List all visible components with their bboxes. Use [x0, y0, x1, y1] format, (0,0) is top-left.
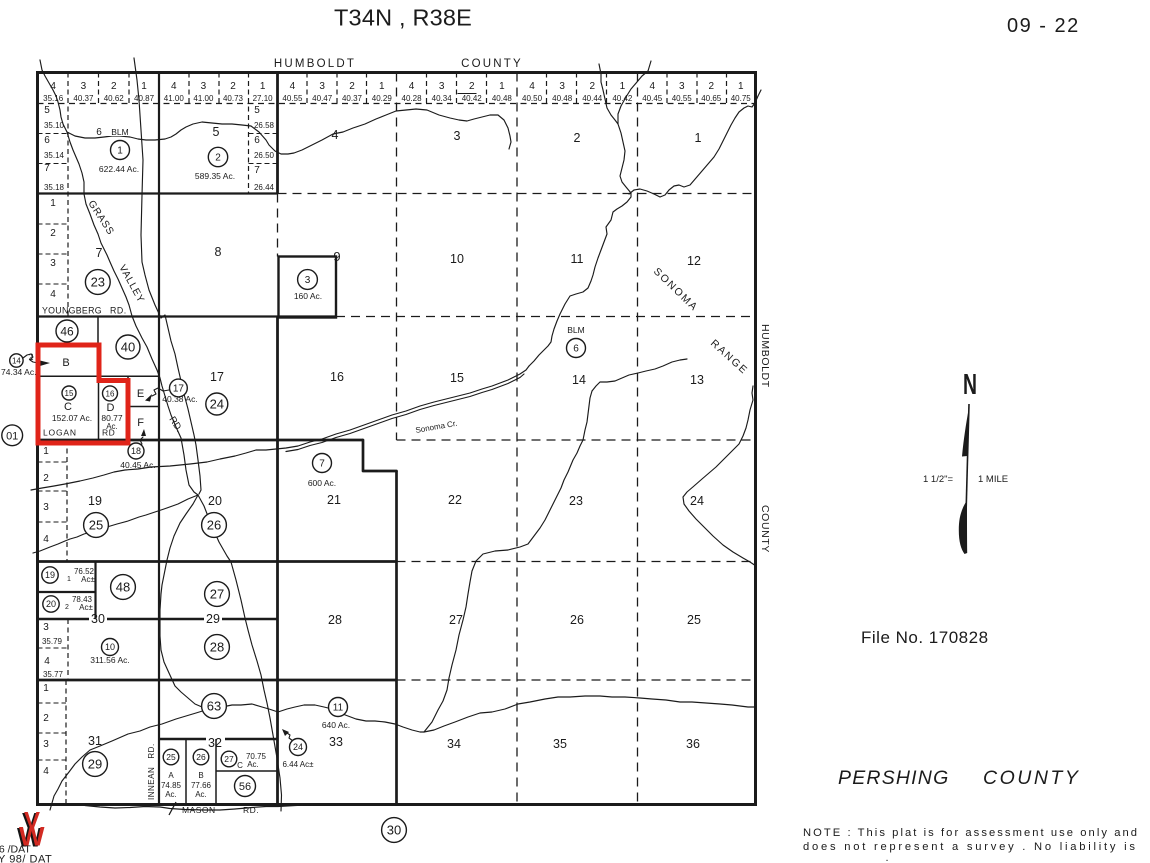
svg-text:311.56 Ac.: 311.56 Ac. [90, 655, 130, 665]
svg-text:T34N , R38E: T34N , R38E [334, 5, 472, 31]
svg-text:6: 6 [254, 135, 260, 146]
svg-text:35.10: 35.10 [44, 121, 65, 130]
svg-text:RD: RD [102, 428, 115, 438]
svg-text:SONOMA: SONOMA [651, 266, 701, 315]
svg-text:3: 3 [559, 81, 565, 92]
svg-text:1: 1 [260, 81, 266, 92]
svg-text:35.18: 35.18 [44, 183, 65, 192]
svg-text:1: 1 [43, 683, 49, 694]
svg-text:40.48: 40.48 [492, 94, 513, 103]
svg-text:does not represent a survey .: does not represent a survey . No liabili… [803, 841, 1135, 853]
svg-text:160 Ac.: 160 Ac. [294, 291, 322, 301]
svg-text:40.45 Ac.: 40.45 Ac. [120, 460, 155, 470]
svg-text:2: 2 [111, 81, 117, 92]
svg-text:16: 16 [330, 370, 344, 384]
svg-text:40.47: 40.47 [312, 94, 333, 103]
svg-text:15: 15 [450, 371, 464, 385]
svg-text:RANGE: RANGE [708, 337, 750, 377]
svg-text:1: 1 [695, 131, 702, 145]
svg-text:Ac±: Ac± [81, 575, 95, 584]
svg-text:74.34 Ac.: 74.34 Ac. [1, 367, 36, 377]
svg-text:9: 9 [333, 249, 340, 264]
svg-text:2: 2 [589, 81, 595, 92]
svg-text:40.45: 40.45 [642, 94, 663, 103]
svg-text:2: 2 [469, 81, 475, 92]
svg-text:40.37: 40.37 [342, 94, 363, 103]
svg-text:11: 11 [333, 703, 344, 714]
svg-text:24: 24 [210, 397, 224, 412]
svg-text:3: 3 [305, 275, 311, 286]
svg-text:25: 25 [166, 752, 176, 762]
svg-text:RD.: RD. [166, 415, 184, 435]
svg-text:D: D [107, 402, 115, 414]
svg-text:17: 17 [210, 370, 224, 384]
svg-text:63: 63 [207, 699, 221, 714]
svg-text:19: 19 [88, 494, 102, 508]
svg-text:7: 7 [254, 165, 260, 176]
svg-text:4: 4 [290, 81, 296, 92]
svg-text:4: 4 [529, 81, 535, 92]
svg-text:29: 29 [88, 757, 102, 772]
svg-text:LOGAN: LOGAN [43, 428, 77, 438]
svg-text:10: 10 [105, 642, 115, 652]
svg-text:5: 5 [213, 125, 220, 139]
svg-text:24: 24 [293, 742, 303, 752]
svg-text:2: 2 [230, 81, 236, 92]
svg-text:14: 14 [12, 356, 21, 365]
svg-text:N: N [963, 369, 977, 401]
svg-text:26: 26 [570, 613, 584, 627]
svg-text:15: 15 [65, 389, 74, 398]
svg-text:35.79: 35.79 [42, 637, 63, 646]
svg-text:33: 33 [329, 735, 343, 749]
svg-text:48: 48 [116, 580, 130, 595]
svg-text:3: 3 [454, 129, 461, 143]
svg-text:27: 27 [210, 587, 224, 602]
svg-text:C: C [237, 761, 243, 770]
svg-text:6: 6 [573, 344, 579, 355]
svg-text:Y 98/ DAT: Y 98/ DAT [0, 854, 52, 863]
svg-text:23: 23 [91, 275, 105, 290]
svg-text:600 Ac.: 600 Ac. [308, 478, 336, 488]
svg-text:40.34: 40.34 [432, 94, 453, 103]
svg-text:40.44: 40.44 [582, 94, 603, 103]
svg-text:26.44: 26.44 [254, 183, 275, 192]
svg-text:4: 4 [171, 81, 177, 92]
svg-text:09 - 22: 09 - 22 [1007, 15, 1080, 37]
svg-text:40.62: 40.62 [104, 94, 125, 103]
svg-text:25: 25 [89, 518, 103, 533]
svg-text:40.28: 40.28 [402, 94, 423, 103]
svg-text:21: 21 [327, 493, 341, 507]
svg-text:3: 3 [81, 81, 87, 92]
svg-text:26: 26 [207, 518, 221, 533]
svg-text:36: 36 [686, 737, 700, 751]
svg-text:22: 22 [448, 493, 462, 507]
svg-text:19: 19 [45, 570, 55, 580]
svg-text:A: A [168, 771, 174, 780]
svg-text:40.87: 40.87 [134, 94, 155, 103]
svg-text:GRASS: GRASS [85, 199, 115, 238]
svg-text:6.44 Ac±: 6.44 Ac± [282, 760, 314, 769]
svg-text:.: . [885, 852, 888, 863]
svg-text:2: 2 [28, 352, 33, 362]
svg-text:F: F [137, 417, 144, 429]
svg-text:4: 4 [50, 289, 56, 300]
svg-text:23: 23 [569, 494, 583, 508]
svg-text:40.29: 40.29 [372, 94, 393, 103]
svg-text:7: 7 [44, 163, 50, 174]
svg-text:B: B [198, 771, 203, 780]
svg-text:6: 6 [44, 135, 50, 146]
svg-text:40.65: 40.65 [701, 94, 722, 103]
svg-text:27.10: 27.10 [253, 94, 274, 103]
svg-text:2: 2 [708, 81, 714, 92]
svg-text:589.35 Ac.: 589.35 Ac. [195, 171, 235, 181]
svg-text:YOUNGBERG: YOUNGBERG [42, 306, 102, 316]
svg-text:5: 5 [44, 105, 50, 116]
svg-text:13: 13 [690, 373, 704, 387]
svg-text:622.44 Ac.: 622.44 Ac. [99, 164, 139, 174]
svg-text:3: 3 [43, 739, 49, 750]
svg-text:40.48: 40.48 [552, 94, 573, 103]
svg-text:56: 56 [239, 781, 251, 793]
svg-text:34: 34 [447, 737, 461, 751]
svg-text:Ac.: Ac. [165, 790, 177, 799]
svg-text:RD.: RD. [243, 805, 259, 815]
svg-text:2: 2 [65, 604, 69, 611]
svg-text:PERSHING: PERSHING [838, 767, 949, 789]
svg-text:27: 27 [224, 754, 234, 764]
svg-text:40.42: 40.42 [462, 94, 483, 103]
svg-text:2: 2 [349, 81, 355, 92]
svg-text:35.16: 35.16 [43, 94, 64, 103]
svg-text:BLM: BLM [567, 325, 584, 335]
svg-text:24: 24 [690, 494, 704, 508]
svg-text:4: 4 [43, 766, 49, 777]
svg-text:2: 2 [50, 228, 56, 239]
svg-text:41.00: 41.00 [193, 94, 214, 103]
svg-text:26.50: 26.50 [254, 151, 275, 160]
svg-text:40.73: 40.73 [223, 94, 244, 103]
svg-text:1: 1 [50, 198, 56, 209]
svg-text:HUMBOLDT: HUMBOLDT [759, 324, 771, 388]
svg-text:3: 3 [43, 502, 49, 513]
svg-text:4: 4 [649, 81, 655, 92]
svg-text:COUNTY: COUNTY [759, 505, 771, 553]
svg-text:40.37: 40.37 [73, 94, 94, 103]
svg-text:40: 40 [121, 340, 135, 355]
svg-text:40.55: 40.55 [282, 94, 303, 103]
svg-text:28: 28 [328, 613, 342, 627]
svg-text:29: 29 [206, 612, 220, 626]
svg-text:File No. 170828: File No. 170828 [861, 628, 989, 647]
svg-text:MASON: MASON [182, 805, 216, 815]
svg-text:40.75: 40.75 [731, 94, 752, 103]
svg-text:C: C [64, 401, 72, 413]
svg-text:27: 27 [449, 613, 463, 627]
svg-text:41.00: 41.00 [164, 94, 185, 103]
svg-text:3: 3 [50, 258, 56, 269]
svg-text:7: 7 [319, 459, 325, 470]
svg-text:640 Ac.: 640 Ac. [322, 720, 350, 730]
svg-text:5: 5 [254, 105, 260, 116]
svg-text:1: 1 [499, 81, 505, 92]
svg-text:16: 16 [106, 389, 115, 398]
svg-text:35.77: 35.77 [43, 670, 64, 679]
svg-text:B: B [62, 357, 69, 369]
svg-text:3: 3 [679, 81, 685, 92]
svg-text:2: 2 [574, 131, 581, 145]
svg-text:01: 01 [6, 430, 18, 442]
svg-text:E: E [137, 388, 144, 400]
svg-text:1: 1 [141, 81, 147, 92]
svg-text:31: 31 [88, 734, 102, 748]
svg-text:1 1/2"=: 1 1/2"= [923, 474, 954, 485]
svg-text:Ac.: Ac. [247, 760, 259, 769]
svg-text:RD.: RD. [110, 306, 127, 316]
svg-text:74.85: 74.85 [161, 781, 182, 790]
svg-text:COUNTY: COUNTY [983, 767, 1080, 789]
svg-text:4: 4 [43, 534, 49, 545]
svg-text:25: 25 [687, 613, 701, 627]
svg-text:1 MILE: 1 MILE [978, 474, 1008, 485]
svg-text:40.55: 40.55 [672, 94, 693, 103]
svg-text:4: 4 [409, 81, 415, 92]
svg-text:11: 11 [571, 252, 584, 266]
svg-text:18: 18 [131, 446, 141, 456]
svg-text:30: 30 [387, 823, 401, 838]
svg-text:3: 3 [43, 622, 49, 633]
svg-text:10: 10 [450, 252, 464, 266]
svg-text:152.07 Ac.: 152.07 Ac. [52, 413, 92, 423]
svg-text:4: 4 [44, 656, 50, 667]
svg-text:Sonoma Cr.: Sonoma Cr. [415, 419, 458, 435]
svg-text:14: 14 [572, 373, 586, 387]
svg-text:2: 2 [43, 713, 49, 724]
svg-text:40.38 Ac.: 40.38 Ac. [162, 394, 197, 404]
svg-text:2: 2 [215, 153, 221, 164]
svg-text:35: 35 [553, 737, 567, 751]
svg-text:1: 1 [117, 146, 123, 157]
svg-text:3: 3 [201, 81, 207, 92]
svg-text:40.42: 40.42 [612, 94, 633, 103]
svg-text:1: 1 [43, 446, 49, 457]
svg-text:30: 30 [91, 612, 105, 626]
svg-text:HUMBOLDT: HUMBOLDT [274, 58, 356, 70]
svg-text:1: 1 [620, 81, 626, 92]
svg-text:1: 1 [379, 81, 385, 92]
svg-text:4: 4 [332, 128, 339, 142]
svg-text:46: 46 [60, 324, 74, 338]
svg-text:3: 3 [319, 81, 325, 92]
svg-text:6: 6 [96, 127, 102, 138]
svg-text:INNEAN RD.: INNEAN RD. [147, 743, 156, 800]
svg-text:40.50: 40.50 [522, 94, 543, 103]
svg-text:20: 20 [46, 599, 56, 609]
svg-text:BLM: BLM [111, 127, 128, 137]
svg-text:1: 1 [738, 81, 744, 92]
svg-text:Ac.: Ac. [195, 790, 207, 799]
svg-text:12: 12 [687, 254, 701, 268]
svg-text:NOTE : This plat is for assess: NOTE : This plat is for assessment use o… [803, 827, 1137, 839]
svg-text:28: 28 [210, 640, 224, 655]
svg-text:2: 2 [43, 473, 49, 484]
svg-text:17: 17 [173, 384, 185, 395]
svg-text:1: 1 [67, 576, 71, 583]
svg-text:26: 26 [196, 752, 206, 762]
svg-text:35.14: 35.14 [44, 151, 65, 160]
svg-text:7: 7 [96, 246, 103, 260]
svg-text:20: 20 [208, 494, 222, 508]
svg-text:8: 8 [215, 245, 222, 259]
svg-text:Ac±: Ac± [79, 603, 93, 612]
svg-text:26.58: 26.58 [254, 121, 275, 130]
svg-text:COUNTY: COUNTY [461, 58, 523, 70]
svg-text:3: 3 [439, 81, 445, 92]
svg-text:77.66: 77.66 [191, 781, 212, 790]
svg-text:32: 32 [208, 736, 222, 750]
